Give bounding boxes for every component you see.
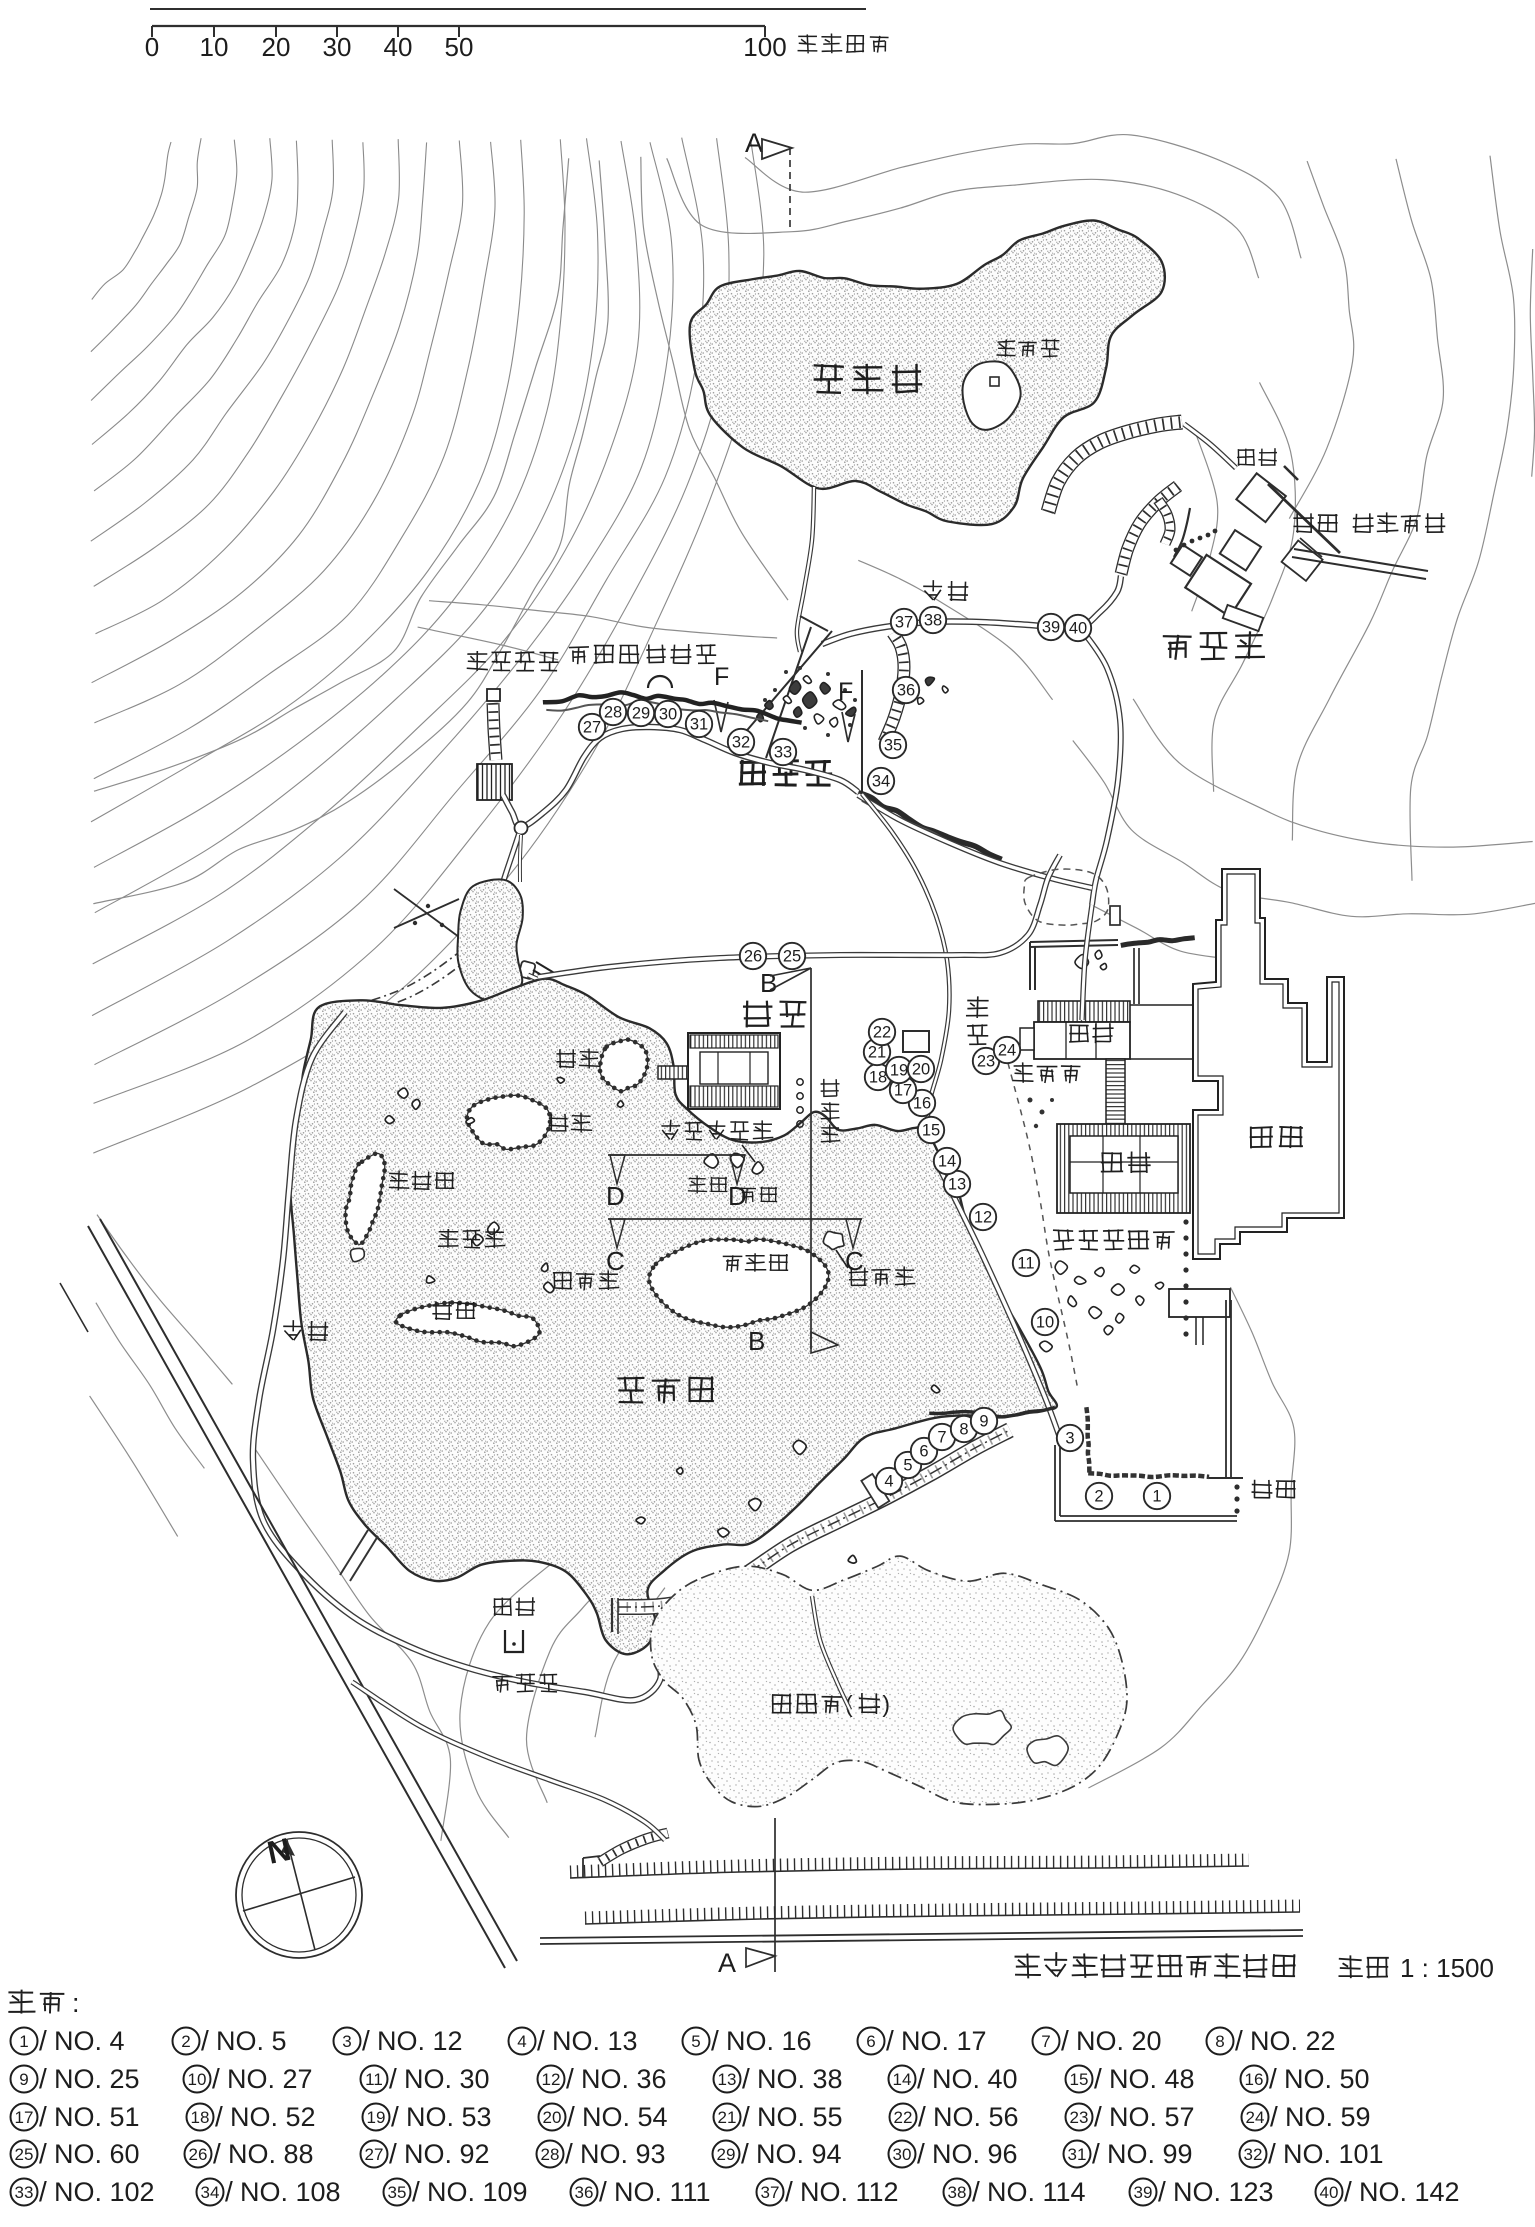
svg-text:40: 40 xyxy=(1069,620,1087,638)
svg-text:NO. 96: NO. 96 xyxy=(932,2139,1018,2169)
svg-text:19: 19 xyxy=(890,1062,908,1080)
svg-text:24: 24 xyxy=(1246,2108,1265,2127)
svg-text:30: 30 xyxy=(659,706,677,724)
svg-text:37: 37 xyxy=(895,614,913,632)
svg-text:12: 12 xyxy=(974,1209,992,1227)
svg-text:50: 50 xyxy=(445,32,474,62)
svg-text:38: 38 xyxy=(924,612,942,630)
svg-text:39: 39 xyxy=(1042,619,1060,637)
svg-text:38: 38 xyxy=(948,2183,967,2202)
svg-text:/: / xyxy=(39,2176,47,2207)
svg-text:/: / xyxy=(566,2063,574,2094)
svg-text:/: / xyxy=(389,2138,397,2169)
svg-text:20: 20 xyxy=(262,32,291,62)
svg-text:/: / xyxy=(391,2101,399,2132)
svg-text:NO. 92: NO. 92 xyxy=(404,2139,490,2169)
svg-text:/: / xyxy=(972,2176,980,2207)
svg-text:22: 22 xyxy=(873,1024,891,1042)
svg-text:N: N xyxy=(264,1831,294,1871)
svg-text:NO. 54: NO. 54 xyxy=(582,2102,668,2132)
svg-text:11: 11 xyxy=(365,2070,383,2089)
svg-text:/: / xyxy=(599,2176,607,2207)
svg-text:40: 40 xyxy=(384,32,413,62)
svg-text:28: 28 xyxy=(541,2145,560,2164)
svg-text:NO. 48: NO. 48 xyxy=(1109,2064,1195,2094)
svg-text:NO. 56: NO. 56 xyxy=(933,2102,1019,2132)
svg-text:NO. 20: NO. 20 xyxy=(1076,2026,1162,2056)
svg-text:NO. 40: NO. 40 xyxy=(932,2064,1018,2094)
svg-text:/: / xyxy=(567,2101,575,2132)
svg-text:/: / xyxy=(1092,2138,1100,2169)
svg-text:39: 39 xyxy=(1134,2183,1153,2202)
svg-text:/: / xyxy=(212,2063,220,2094)
svg-text:5: 5 xyxy=(691,2032,700,2051)
svg-text:7: 7 xyxy=(1041,2032,1050,2051)
svg-text:/: / xyxy=(39,2025,47,2056)
svg-text:/: / xyxy=(213,2138,221,2169)
svg-text:30: 30 xyxy=(893,2145,912,2164)
svg-text:0: 0 xyxy=(145,32,159,62)
svg-text:21: 21 xyxy=(868,1044,886,1062)
svg-text:25: 25 xyxy=(15,2145,34,2164)
svg-text:8: 8 xyxy=(1215,2032,1224,2051)
svg-text:NO. 99: NO. 99 xyxy=(1107,2139,1193,2169)
svg-text:3: 3 xyxy=(1065,1430,1074,1448)
svg-text:NO. 30: NO. 30 xyxy=(404,2064,490,2094)
svg-text:13: 13 xyxy=(718,2070,737,2089)
svg-text:12: 12 xyxy=(542,2070,561,2089)
svg-text:35: 35 xyxy=(388,2183,407,2202)
svg-text:/: / xyxy=(1235,2025,1243,2056)
svg-text:7: 7 xyxy=(937,1429,946,1447)
svg-text:19: 19 xyxy=(367,2108,386,2127)
svg-text:/: / xyxy=(1094,2063,1102,2094)
svg-text:A: A xyxy=(718,1948,736,1978)
svg-text:NO. 12: NO. 12 xyxy=(377,2026,463,2056)
svg-text:/: / xyxy=(1158,2176,1166,2207)
svg-text:6: 6 xyxy=(919,1443,928,1461)
svg-text:26: 26 xyxy=(189,2145,208,2164)
svg-text:20: 20 xyxy=(912,1061,930,1079)
svg-text:/: / xyxy=(1270,2101,1278,2132)
svg-text:/: / xyxy=(412,2176,420,2207)
svg-text:17: 17 xyxy=(894,1082,912,1100)
svg-text:NO. 27: NO. 27 xyxy=(227,2064,313,2094)
svg-text:NO. 112: NO. 112 xyxy=(800,2177,899,2207)
svg-text:NO. 88: NO. 88 xyxy=(228,2139,314,2169)
svg-text:NO. 53: NO. 53 xyxy=(406,2102,492,2132)
svg-text:NO. 57: NO. 57 xyxy=(1109,2102,1195,2132)
svg-text:36: 36 xyxy=(575,2183,594,2202)
svg-text:NO. 59: NO. 59 xyxy=(1285,2102,1371,2132)
svg-text:NO. 25: NO. 25 xyxy=(54,2064,140,2094)
svg-text:14: 14 xyxy=(938,1153,956,1171)
svg-text:/: / xyxy=(742,2101,750,2132)
svg-text:14: 14 xyxy=(893,2070,912,2089)
svg-text:NO. 50: NO. 50 xyxy=(1284,2064,1370,2094)
svg-text:): ) xyxy=(882,1691,890,1717)
svg-text:4: 4 xyxy=(517,2032,526,2051)
svg-text:28: 28 xyxy=(604,704,622,722)
svg-text:/: / xyxy=(1344,2176,1352,2207)
svg-text:10: 10 xyxy=(200,32,229,62)
svg-text:/: / xyxy=(1094,2101,1102,2132)
svg-text:/: / xyxy=(917,2138,925,2169)
svg-text:33: 33 xyxy=(774,744,792,762)
svg-text:10: 10 xyxy=(188,2070,207,2089)
svg-text:20: 20 xyxy=(543,2108,562,2127)
svg-text:24: 24 xyxy=(998,1042,1016,1060)
svg-text:/: / xyxy=(39,2101,47,2132)
svg-text::: : xyxy=(72,1988,80,2018)
svg-text:C: C xyxy=(606,1246,625,1276)
svg-text:NO. 17: NO. 17 xyxy=(901,2026,987,2056)
svg-text:/: / xyxy=(225,2176,233,2207)
svg-text:A: A xyxy=(745,128,763,158)
svg-text:NO. 36: NO. 36 xyxy=(581,2064,667,2094)
svg-text:NO. 13: NO. 13 xyxy=(552,2026,638,2056)
svg-text:5: 5 xyxy=(903,1457,912,1475)
svg-text:/: / xyxy=(785,2176,793,2207)
svg-text:25: 25 xyxy=(783,948,801,966)
svg-text:NO. 111: NO. 111 xyxy=(614,2177,711,2207)
svg-text:26: 26 xyxy=(744,948,762,966)
svg-text:23: 23 xyxy=(977,1053,995,1071)
svg-text:NO. 5: NO. 5 xyxy=(216,2026,287,2056)
svg-text:B: B xyxy=(748,1326,765,1356)
svg-text:34: 34 xyxy=(872,773,890,791)
svg-text:6: 6 xyxy=(866,2032,875,2051)
svg-text:/: / xyxy=(917,2063,925,2094)
svg-text:11: 11 xyxy=(1017,1255,1034,1273)
svg-text:100: 100 xyxy=(743,32,786,62)
svg-text:NO. 60: NO. 60 xyxy=(54,2139,140,2169)
svg-text:/: / xyxy=(1061,2025,1069,2056)
svg-text:NO. 16: NO. 16 xyxy=(726,2026,812,2056)
svg-text:22: 22 xyxy=(894,2108,913,2127)
svg-text:/: / xyxy=(537,2025,545,2056)
svg-text:NO. 102: NO. 102 xyxy=(54,2177,155,2207)
svg-text:NO. 108: NO. 108 xyxy=(240,2177,341,2207)
svg-text:3: 3 xyxy=(342,2032,351,2051)
svg-text:37: 37 xyxy=(761,2183,780,2202)
svg-text:D: D xyxy=(728,1181,747,1211)
svg-text:40: 40 xyxy=(1320,2183,1339,2202)
svg-text:/: / xyxy=(1268,2138,1276,2169)
svg-text:/: / xyxy=(215,2101,223,2132)
svg-text:18: 18 xyxy=(191,2108,210,2127)
svg-text:NO. 38: NO. 38 xyxy=(757,2064,843,2094)
svg-text:1: 1 xyxy=(19,2032,28,2051)
svg-text:/: / xyxy=(201,2025,209,2056)
svg-text:1: 1 xyxy=(1152,1488,1161,1506)
svg-text:13: 13 xyxy=(948,1176,966,1194)
svg-text:30: 30 xyxy=(323,32,352,62)
svg-text:/: / xyxy=(389,2063,397,2094)
svg-text:C: C xyxy=(845,1246,864,1276)
svg-text:15: 15 xyxy=(1070,2070,1089,2089)
svg-text:NO. 101: NO. 101 xyxy=(1283,2139,1384,2169)
svg-text:31: 31 xyxy=(1068,2145,1087,2164)
svg-text:/: / xyxy=(39,2063,47,2094)
svg-text:10: 10 xyxy=(1036,1314,1054,1332)
svg-text:23: 23 xyxy=(1070,2108,1089,2127)
svg-text:B: B xyxy=(760,968,777,998)
svg-text:/: / xyxy=(1269,2063,1277,2094)
svg-text:4: 4 xyxy=(884,1473,893,1491)
svg-text:NO. 109: NO. 109 xyxy=(427,2177,528,2207)
svg-text:32: 32 xyxy=(1244,2145,1263,2164)
svg-text:17: 17 xyxy=(15,2108,34,2127)
svg-text:NO. 123: NO. 123 xyxy=(1173,2177,1274,2207)
svg-text:27: 27 xyxy=(583,719,601,737)
svg-text:1 : 1500: 1 : 1500 xyxy=(1400,1953,1494,1983)
svg-text:32: 32 xyxy=(732,734,750,752)
svg-text:F: F xyxy=(838,678,853,706)
svg-text:NO. 114: NO. 114 xyxy=(987,2177,1086,2207)
svg-text:/: / xyxy=(362,2025,370,2056)
svg-text:16: 16 xyxy=(913,1095,931,1113)
svg-text:/: / xyxy=(741,2138,749,2169)
svg-text:NO. 52: NO. 52 xyxy=(230,2102,316,2132)
svg-text:29: 29 xyxy=(632,705,650,723)
svg-text:NO. 142: NO. 142 xyxy=(1359,2177,1460,2207)
svg-text:16: 16 xyxy=(1245,2070,1264,2089)
svg-text:8: 8 xyxy=(959,1421,968,1439)
svg-text:NO. 93: NO. 93 xyxy=(580,2139,666,2169)
svg-text:2: 2 xyxy=(1094,1488,1103,1506)
svg-text:36: 36 xyxy=(897,682,915,700)
svg-text:21: 21 xyxy=(718,2108,737,2127)
svg-text:/: / xyxy=(918,2101,926,2132)
svg-text:NO. 22: NO. 22 xyxy=(1250,2026,1336,2056)
svg-text:29: 29 xyxy=(717,2145,736,2164)
svg-text:2: 2 xyxy=(181,2032,190,2051)
svg-text:/: / xyxy=(565,2138,573,2169)
svg-text:34: 34 xyxy=(201,2183,220,2202)
svg-text:35: 35 xyxy=(884,737,902,755)
svg-text:NO. 4: NO. 4 xyxy=(54,2026,125,2056)
svg-text:/: / xyxy=(742,2063,750,2094)
svg-text:18: 18 xyxy=(869,1069,887,1087)
svg-text:/: / xyxy=(886,2025,894,2056)
svg-text:31: 31 xyxy=(690,716,708,734)
svg-text:27: 27 xyxy=(365,2145,384,2164)
svg-text:33: 33 xyxy=(15,2183,34,2202)
svg-text:/: / xyxy=(39,2138,47,2169)
svg-text:NO. 51: NO. 51 xyxy=(54,2102,140,2132)
svg-text:9: 9 xyxy=(979,1413,988,1431)
svg-text:D: D xyxy=(606,1181,625,1211)
svg-text:NO. 55: NO. 55 xyxy=(757,2102,843,2132)
svg-text:NO. 94: NO. 94 xyxy=(756,2139,842,2169)
svg-text:9: 9 xyxy=(19,2070,28,2089)
svg-text:F: F xyxy=(714,663,729,691)
svg-text:15: 15 xyxy=(922,1122,940,1140)
svg-text:/: / xyxy=(711,2025,719,2056)
